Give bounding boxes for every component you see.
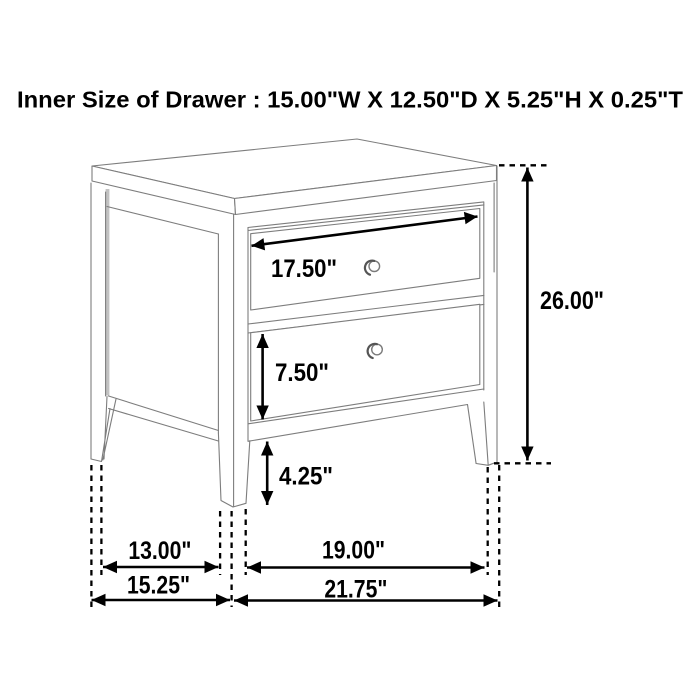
svg-text:26.00": 26.00": [540, 287, 604, 315]
svg-text:19.00": 19.00": [322, 537, 385, 565]
svg-text:17.50": 17.50": [271, 255, 337, 283]
svg-text:Inner Size of Drawer : 15.00"W: Inner Size of Drawer : 15.00"W X 12.50"D…: [17, 87, 683, 113]
svg-text:13.00": 13.00": [128, 537, 191, 565]
svg-text:4.25": 4.25": [279, 463, 333, 491]
svg-text:15.25": 15.25": [127, 572, 190, 600]
svg-text:21.75": 21.75": [324, 576, 387, 604]
svg-text:7.50": 7.50": [275, 359, 329, 387]
